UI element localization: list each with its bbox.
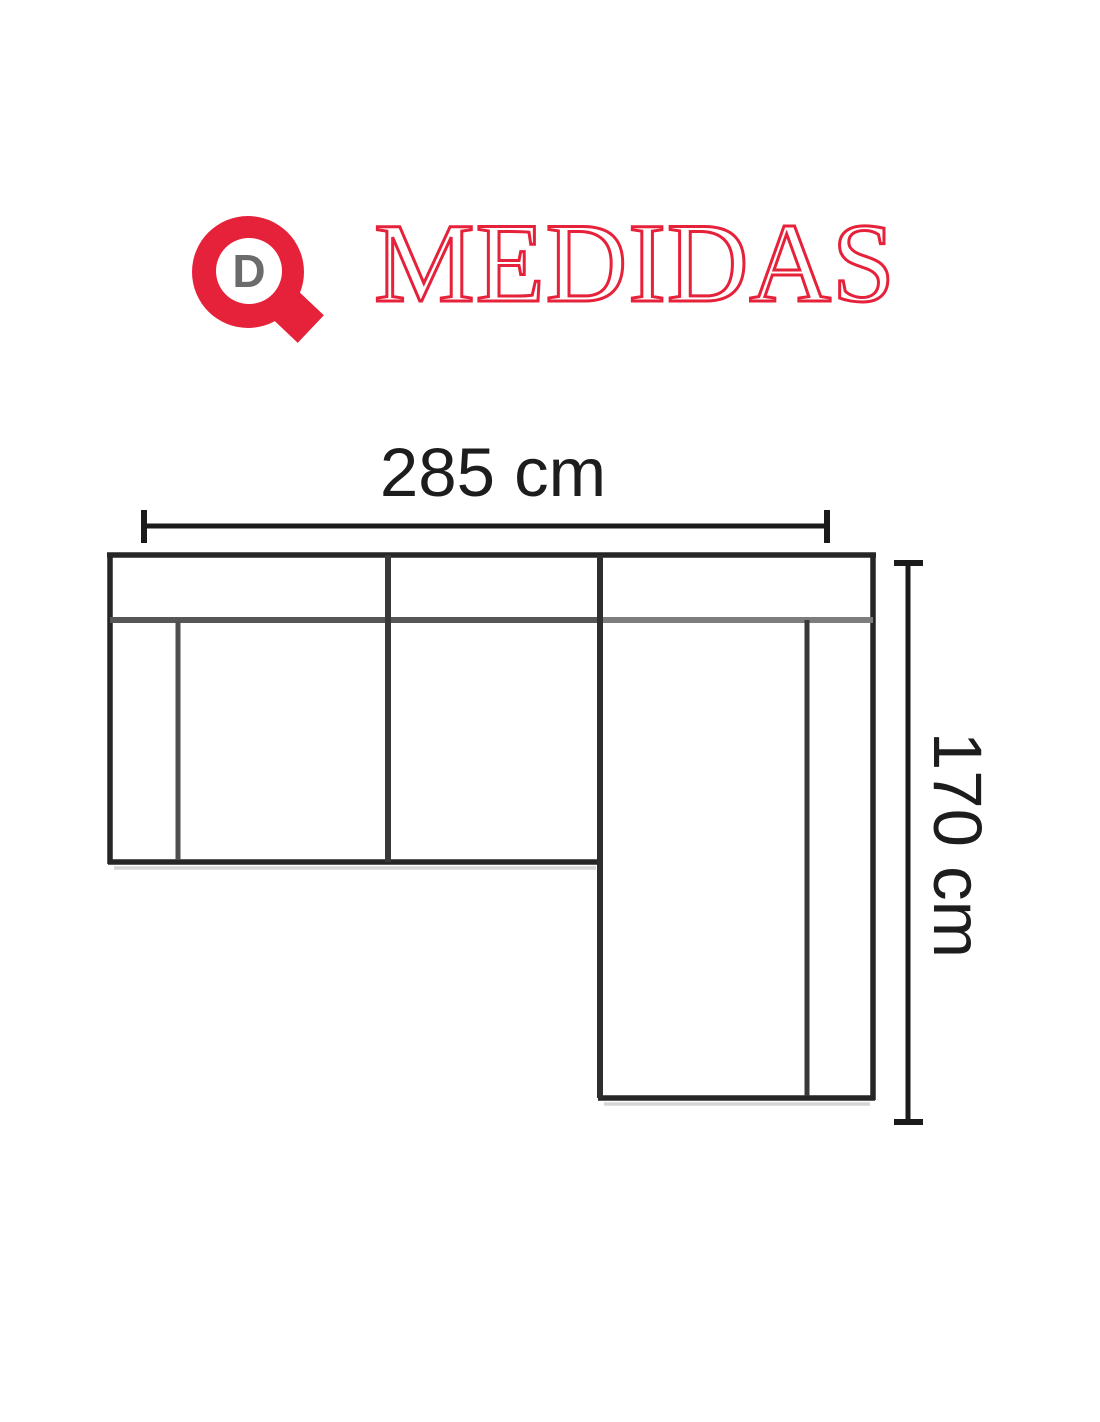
depth-dimension-label: 170 cm [922,645,992,1045]
width-dimension-label: 285 cm [293,438,693,507]
page-canvas: D MEDIDAS 285 cm 170 cm [0,0,1100,1422]
